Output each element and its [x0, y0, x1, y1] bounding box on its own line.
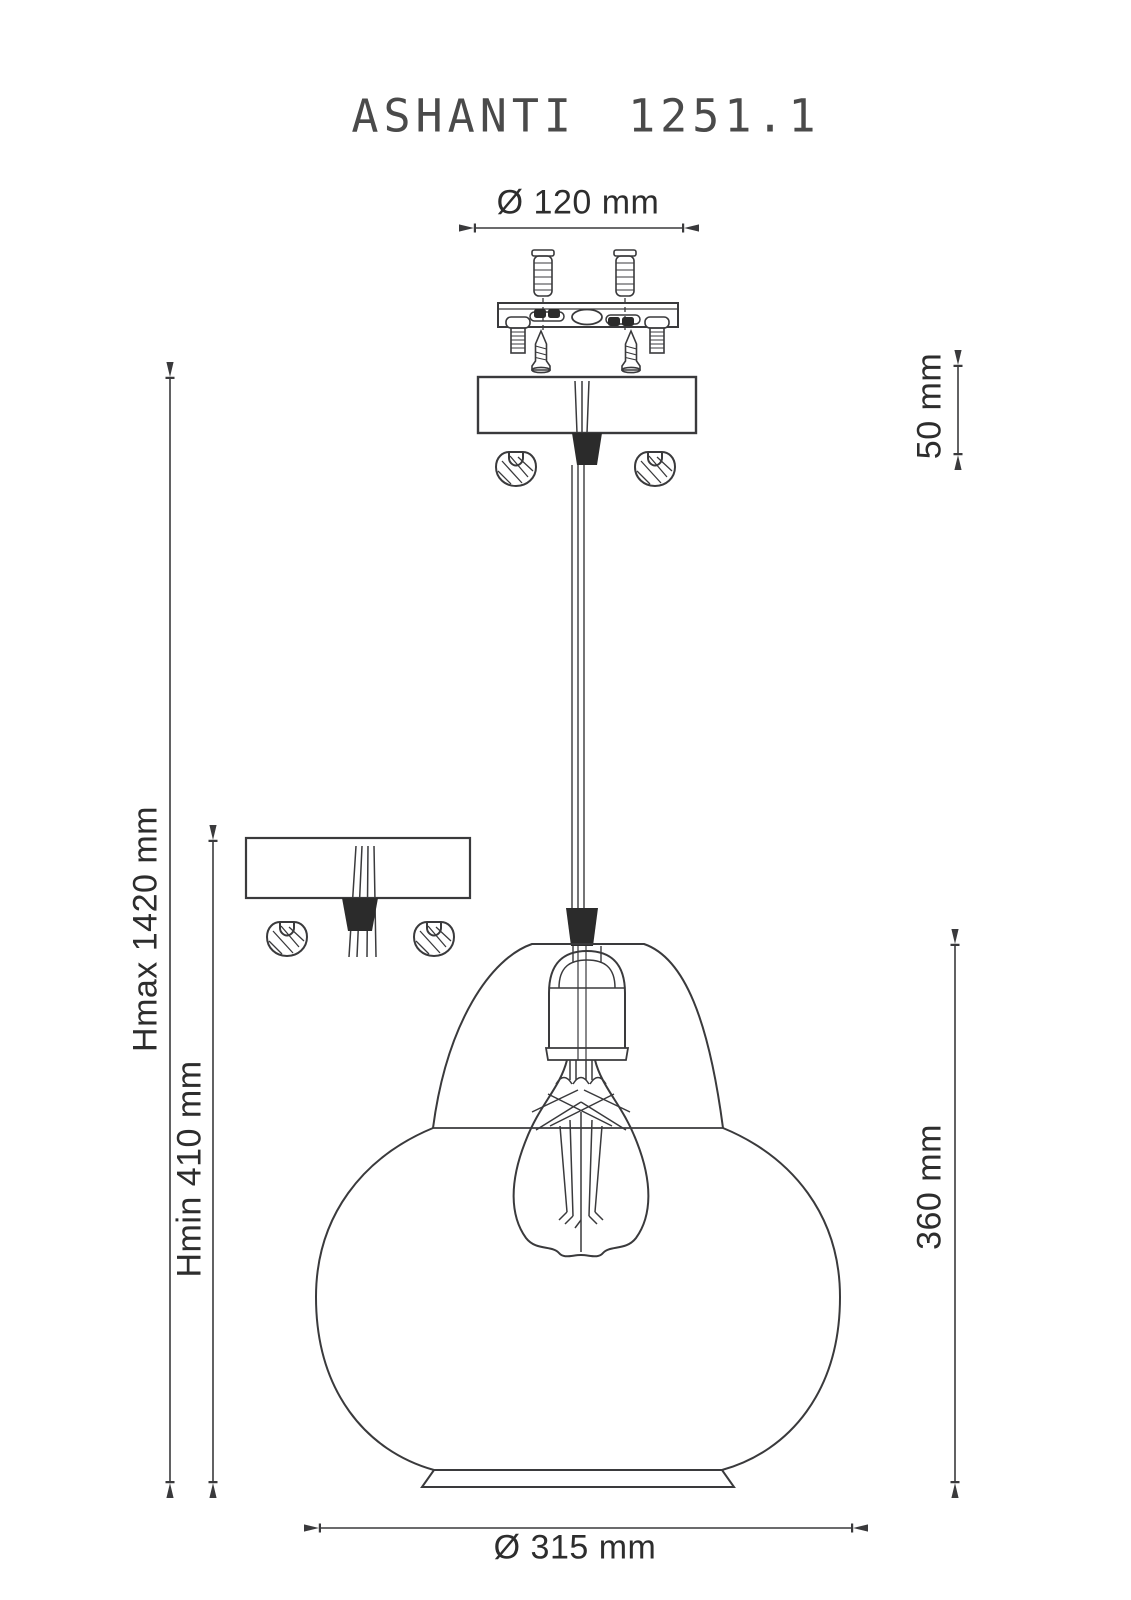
wall-anchor-left-icon: [532, 250, 554, 296]
dim-height-max-label: Hmax 1420 mm: [127, 806, 166, 1052]
dim-canopy-diameter-label: Ø 120 mm: [497, 184, 660, 223]
dome-nut-side-right-icon: [414, 922, 454, 956]
wall-anchor-right-icon: [614, 250, 636, 296]
machine-bolt-right-icon: [645, 317, 669, 353]
cord-grip-lamp: [566, 908, 598, 946]
dome-nut-front-right-icon: [635, 452, 675, 486]
canopy-side-body: [246, 838, 470, 898]
dim-canopy-height-label: 50 mm: [911, 353, 950, 459]
dim-shade-diameter-label: Ø 315 mm: [494, 1529, 657, 1568]
dome-nut-side-left-icon: [267, 922, 307, 956]
technical-drawing-page: ASHANTI 1251.1 Ø 120 mm 50 mm Hmax 1420 …: [0, 0, 1131, 1600]
ceiling-mount-exploded-view: [498, 250, 678, 373]
edison-bulb: [514, 1060, 649, 1256]
wood-screw-left-icon: [532, 331, 550, 373]
dome-nut-front-left-icon: [496, 452, 536, 486]
lamp-socket: [546, 946, 628, 1060]
machine-bolt-left-icon: [506, 317, 530, 353]
shade-base-ring: [422, 1470, 734, 1487]
drawing-title: ASHANTI 1251.1: [351, 90, 820, 143]
cord-grip-canopy: [572, 433, 602, 465]
dimension-lines: [170, 228, 958, 1528]
cord-grip-side: [342, 898, 378, 931]
suspension-cable: [572, 465, 584, 910]
canopy-wires: [575, 381, 589, 433]
wood-screw-right-icon: [622, 331, 640, 373]
pendant-lamp-technical-drawing: [0, 0, 1131, 1600]
ceiling-canopy-side-view: [246, 838, 470, 957]
dim-shade-height-label: 360 mm: [911, 1124, 950, 1250]
ceiling-canopy-front-view: [478, 377, 696, 486]
pendant-lamp-front-view: [316, 465, 840, 1487]
dim-height-min-label: Hmin 410 mm: [171, 1060, 210, 1277]
bulb-filament: [532, 1060, 630, 1252]
